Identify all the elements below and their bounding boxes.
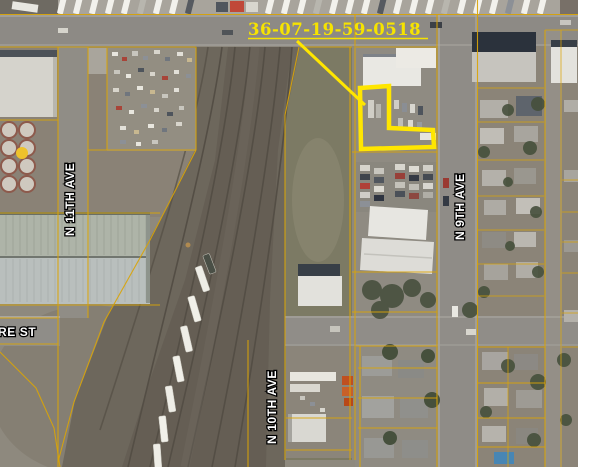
map-viewport[interactable]: 36-07-19-59-0518 N 11TH AVE N 9TH AVE N …: [0, 0, 600, 467]
parcel-id-label[interactable]: 36-07-19-59-0518: [248, 20, 421, 39]
yellow-marker-dot: [16, 147, 28, 159]
scrapyard: [107, 48, 196, 151]
car-lot: [356, 162, 437, 212]
street-label-n-10th-ave: N 10TH AVE: [265, 370, 279, 444]
truck-parking-row: [0, 0, 578, 14]
street-label-re-st: RE ST: [0, 325, 36, 339]
street-label-n-9th-ave: N 9TH AVE: [453, 173, 467, 240]
blue-pool: [494, 452, 514, 464]
aerial-map: 36-07-19-59-0518 N 11TH AVE N 9TH AVE N …: [0, 0, 600, 467]
street-label-n-11th-ave: N 11TH AVE: [63, 163, 77, 236]
right-margin: [578, 0, 600, 467]
industrial-yard-bottom: [286, 346, 353, 458]
